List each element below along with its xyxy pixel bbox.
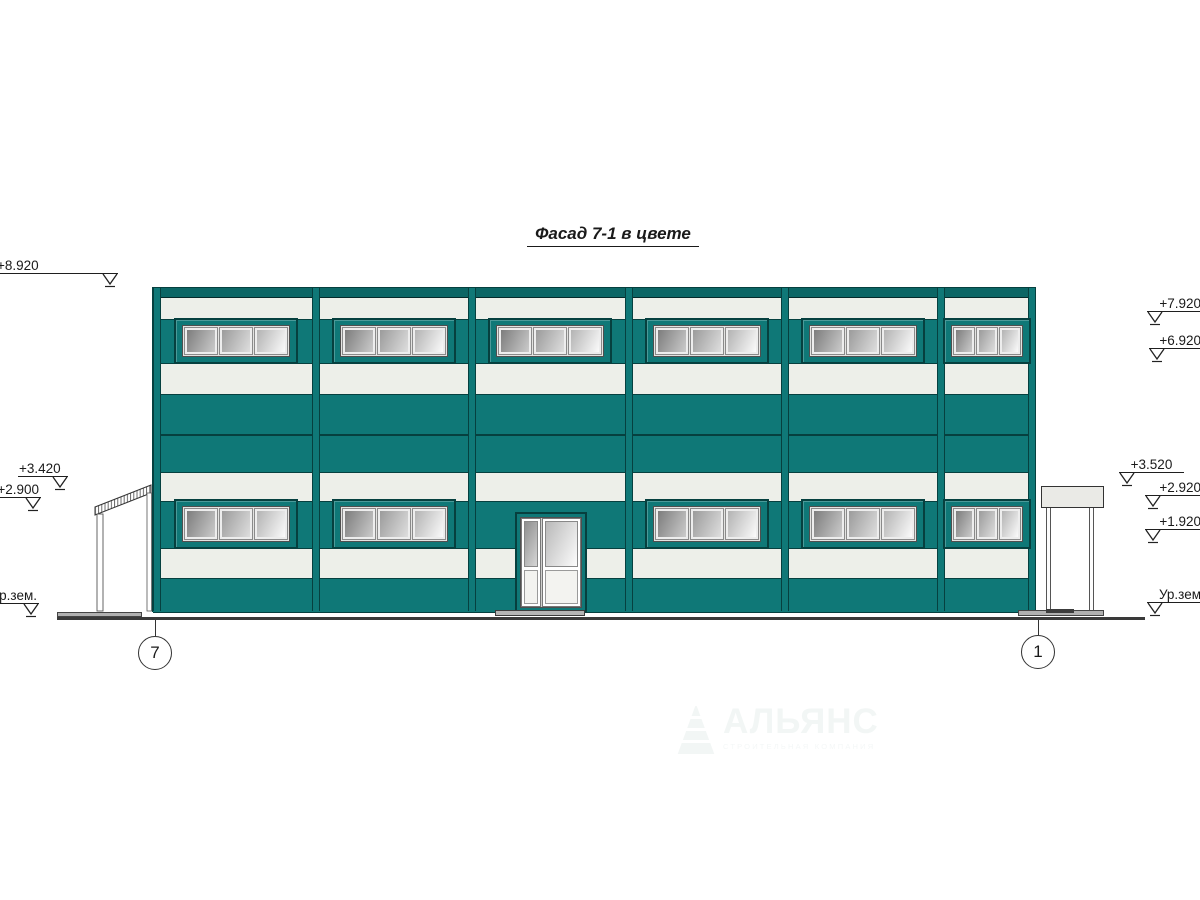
window-group [174,318,298,364]
watermark-tagline: СТРОИТЕЛЬНАЯ КОМПАНИЯ [723,742,879,751]
ground-step-right [1046,609,1074,613]
elevation-mark-ground: Ур.зем. [0,587,39,604]
window-group [332,499,456,549]
window-group [645,318,769,364]
building-facade: АЛЬЯНС СТРОИТЕЛЬНАЯ КОМПАНИЯ [152,287,1036,612]
facade-band-teal [153,394,1035,435]
facade-base-band [153,578,1035,613]
axis-leader-line [1038,620,1039,635]
window-group [645,499,769,549]
elevation-mark: +3.420 [18,460,68,477]
door-leaf-wide [542,518,581,607]
elevation-mark: +3.520 [1119,456,1184,473]
pyramid-logo-icon [677,704,715,756]
elevation-mark: +1.920 [1145,513,1200,530]
facade-band-white [153,549,1035,578]
window-group [801,499,925,549]
elevation-mark: +8.920 [0,257,118,274]
facade-drawing-sheet: Фасад 7-1 в цвете [0,0,1200,900]
facade-band-white [153,473,1035,501]
elevation-mark: +2.920 [1145,479,1200,496]
elevation-mark: +6.920 [1149,332,1200,349]
elevation-mark-ground: Ур.зем [1147,586,1200,603]
axis-marker-7: 7 [138,636,172,670]
right-canopy-slab [1041,486,1104,508]
door-leaf-narrow [521,518,541,607]
left-canopy [88,478,160,620]
pilaster [625,288,633,611]
axis-label: 1 [1033,642,1042,662]
pilaster [781,288,789,611]
facade-band-white [153,298,1035,319]
axis-leader-line [155,620,156,636]
facade-band-white [153,364,1035,394]
drawing-title: Фасад 7-1 в цвете [527,224,699,247]
door-threshold [495,610,585,616]
axis-label: 7 [150,643,159,663]
window-group [488,318,612,364]
window-group [801,318,925,364]
entrance-door [515,512,587,613]
window-group [174,499,298,549]
watermark-brand: АЛЬЯНС [723,704,879,739]
ground-line [57,617,1145,620]
pilaster [312,288,320,611]
axis-marker-1: 1 [1021,635,1055,669]
facade-band-teal [153,435,1035,473]
elevation-mark: +7.920 [1147,295,1200,312]
window-group [943,318,1031,364]
window-group [943,499,1031,549]
canopy-post [1046,508,1051,611]
parapet-band [153,288,1035,298]
elevation-mark: +2.900 [0,481,41,498]
company-watermark: АЛЬЯНС СТРОИТЕЛЬНАЯ КОМПАНИЯ [677,704,879,756]
pilaster [468,288,476,611]
window-group [332,318,456,364]
canopy-post [1089,508,1094,611]
